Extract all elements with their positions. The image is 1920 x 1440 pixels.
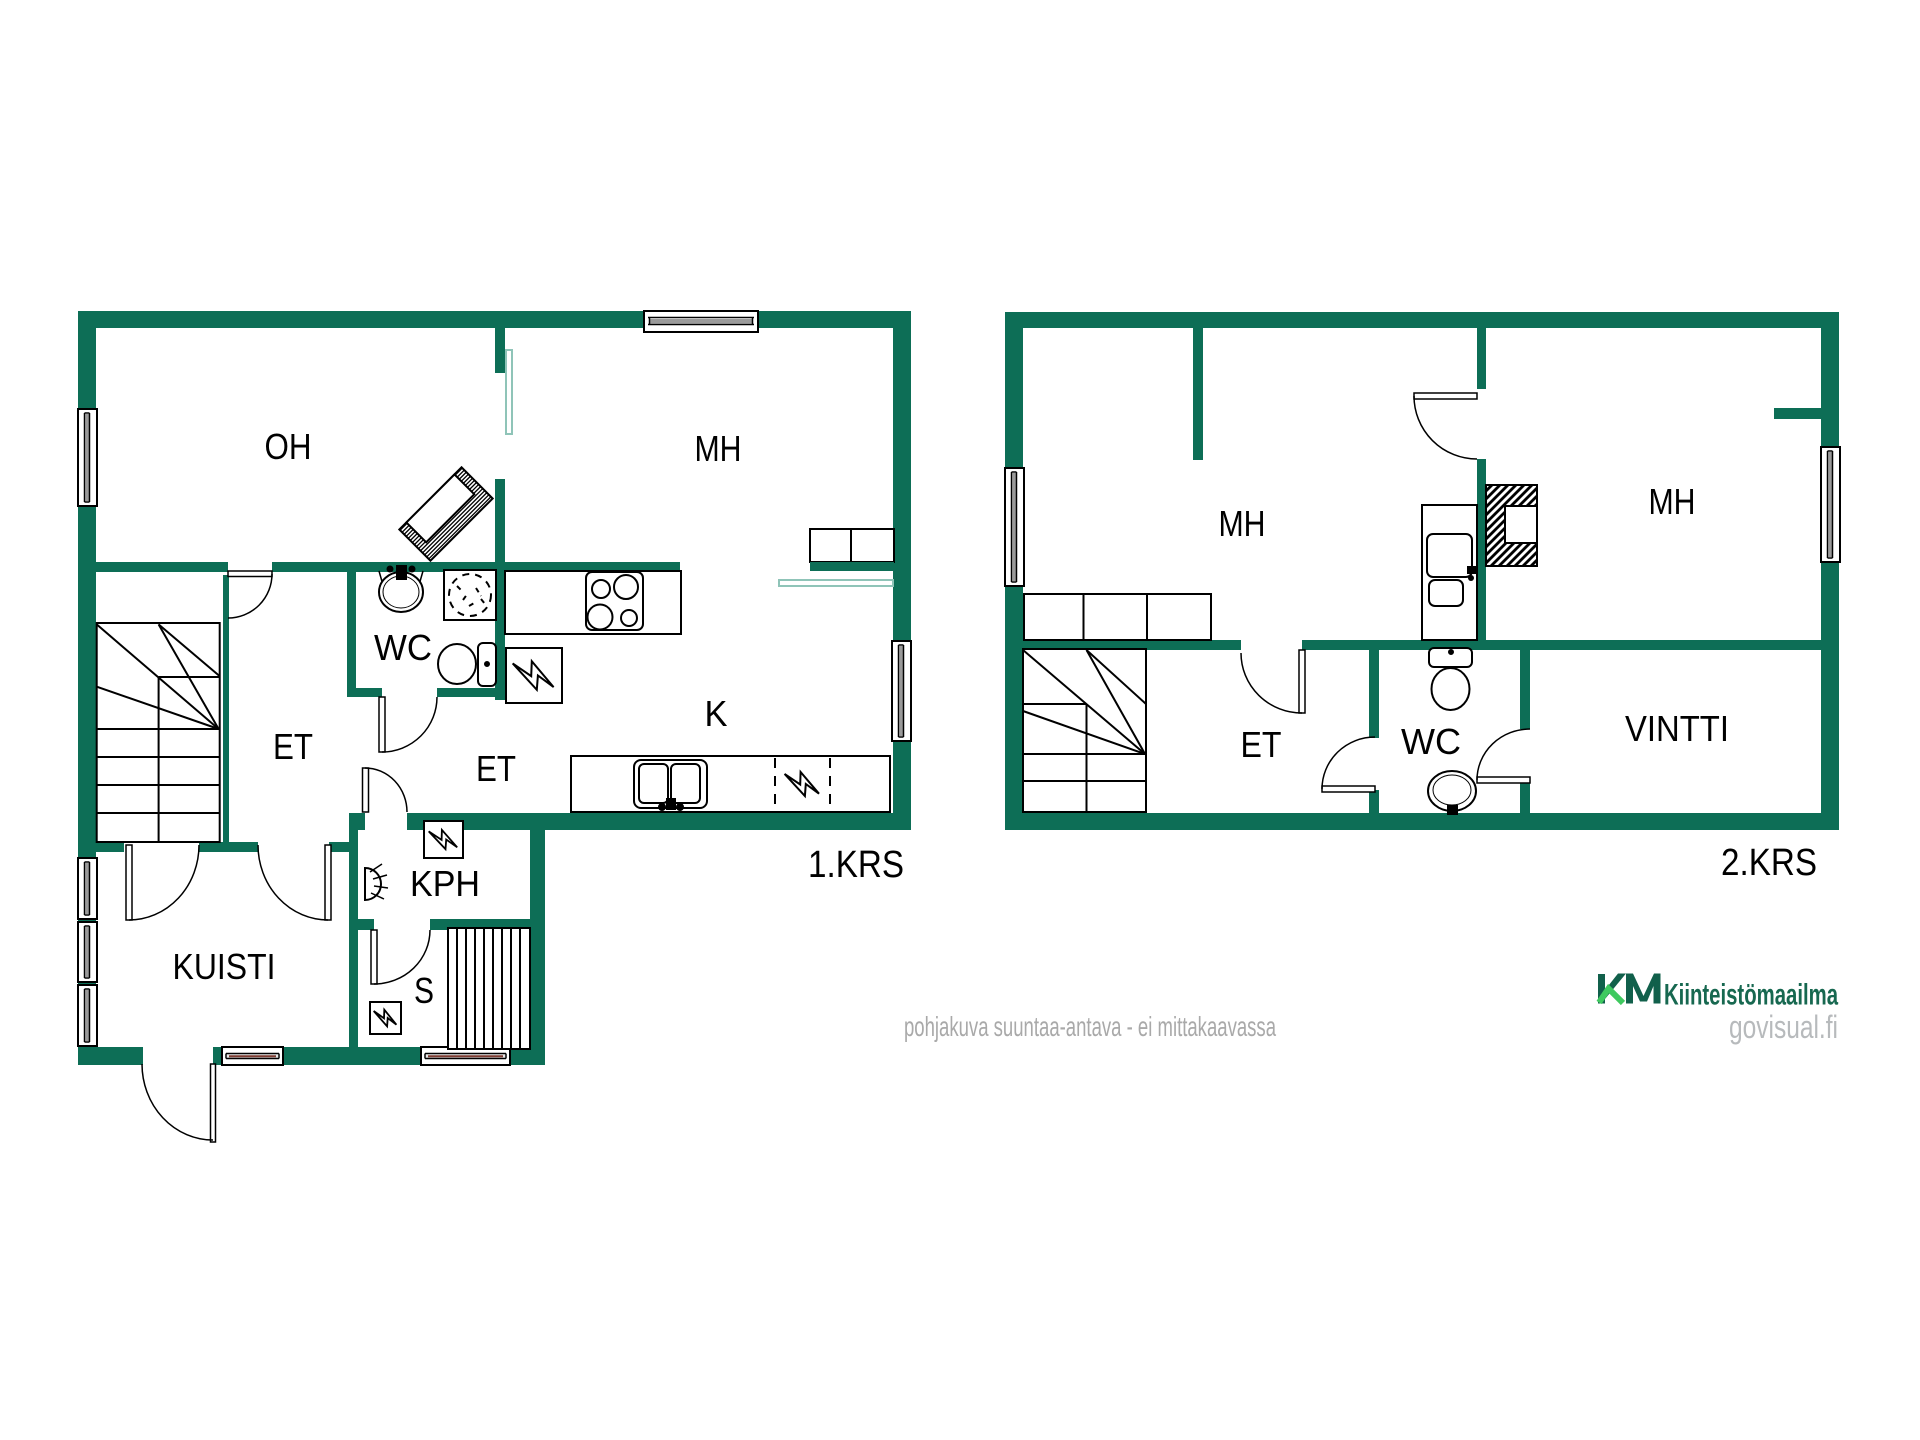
svg-text:pohjakuva suuntaa-antava - ei: pohjakuva suuntaa-antava - ei mittakaava… (904, 1011, 1276, 1042)
svg-text:MH: MH (1649, 481, 1696, 522)
svg-text:MH: MH (695, 428, 742, 469)
svg-text:Kiinteistömaailma: Kiinteistömaailma (1664, 979, 1838, 1012)
svg-text:VINTTI: VINTTI (1625, 708, 1729, 749)
svg-text:WC: WC (374, 627, 432, 668)
svg-text:KPH: KPH (410, 863, 480, 904)
svg-text:ET: ET (476, 748, 516, 789)
svg-text:2.KRS: 2.KRS (1721, 842, 1817, 884)
svg-text:govisual.fi: govisual.fi (1729, 1009, 1838, 1045)
svg-text:MH: MH (1219, 503, 1266, 544)
svg-text:WC: WC (1401, 721, 1461, 762)
svg-text:ET: ET (1241, 724, 1282, 765)
svg-text:1.KRS: 1.KRS (808, 844, 904, 886)
svg-text:K: K (705, 693, 728, 734)
svg-text:KUISTI: KUISTI (173, 946, 276, 987)
svg-text:OH: OH (265, 426, 312, 467)
svg-text:ET: ET (273, 726, 313, 767)
svg-text:S: S (414, 970, 434, 1011)
